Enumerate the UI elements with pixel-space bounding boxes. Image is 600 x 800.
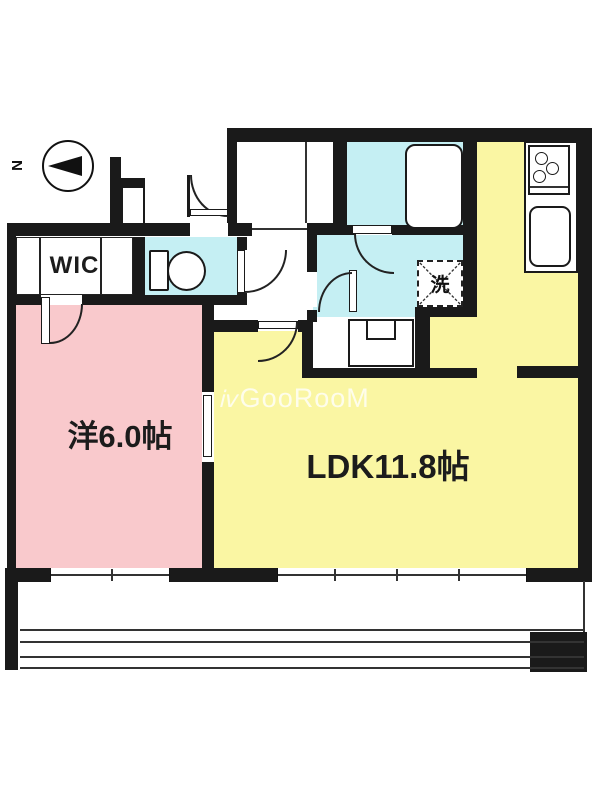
wall <box>415 307 463 317</box>
wall <box>121 178 145 188</box>
washing-machine-box: 洗 <box>417 260 463 307</box>
toilet-tank-icon <box>149 250 169 291</box>
window-tick <box>458 569 460 581</box>
balcony-railing-line <box>20 641 584 643</box>
compass-north-label: N <box>9 160 26 171</box>
western-door-leaf <box>41 297 50 344</box>
balcony-railing-line <box>20 656 584 658</box>
bathroom-door-leaf <box>352 225 392 234</box>
north-arrow-icon <box>48 156 82 176</box>
window-tick <box>111 569 113 581</box>
balcony-partition-block <box>530 632 587 672</box>
wall <box>7 295 41 305</box>
wall <box>7 223 190 236</box>
ldk-label: LDK11.8帖 <box>268 443 508 485</box>
wall <box>82 295 247 305</box>
western-room-label: 洋6.0帖 <box>30 413 210 453</box>
window-tick <box>334 569 336 581</box>
balcony-railing-line <box>20 667 584 669</box>
window <box>277 568 527 582</box>
wall <box>214 320 258 332</box>
wall <box>517 568 592 582</box>
laundry-label: 洗 <box>419 262 461 305</box>
wall <box>313 368 477 378</box>
genkan-step-line <box>252 228 307 230</box>
watermark: ⅳ GooRooM <box>218 383 370 414</box>
room-ldk-nook <box>430 317 478 333</box>
wall <box>170 568 277 582</box>
stove-burner-icon <box>535 152 548 165</box>
toilet-bowl-icon <box>167 251 206 291</box>
wall <box>202 303 214 392</box>
entry-threshold <box>190 209 228 216</box>
wall <box>228 223 252 236</box>
window-glass-line <box>51 574 169 576</box>
floor-plan: WIC <box>0 0 600 800</box>
wall <box>7 223 16 568</box>
wall <box>307 223 347 235</box>
wall <box>578 142 592 581</box>
watermark-text: GooRooM <box>240 383 370 414</box>
stove-burner-icon <box>533 170 546 183</box>
wall <box>202 462 214 568</box>
wall <box>463 128 477 317</box>
vanity-bowl-icon <box>366 319 396 340</box>
wic-label: WIC <box>17 238 132 294</box>
balcony-edge-line <box>583 581 585 632</box>
window <box>50 568 170 582</box>
toilet-door-leaf <box>237 250 245 293</box>
wall <box>227 128 592 142</box>
wall <box>298 320 313 332</box>
wall <box>307 235 317 272</box>
pipe-space-box <box>121 186 145 228</box>
wall <box>110 157 121 228</box>
wall <box>415 317 430 378</box>
room-wic: WIC <box>16 237 133 295</box>
balcony-railing-line <box>20 629 584 631</box>
stove-edge-line <box>530 186 568 188</box>
toilet-door-arc-icon <box>245 250 287 293</box>
wall <box>517 366 592 378</box>
balcony-side-wall <box>5 568 18 670</box>
bathtub-icon <box>405 144 463 229</box>
window-glass-line <box>278 574 526 576</box>
window-tick <box>396 569 398 581</box>
wall <box>333 142 347 224</box>
wall <box>237 237 247 250</box>
kitchen-sink-icon <box>529 206 571 267</box>
watermark-logo-icon: ⅳ <box>218 386 237 413</box>
wall <box>227 142 237 223</box>
stove-burner-icon <box>546 162 559 175</box>
hall-divider-line <box>305 142 307 223</box>
wall <box>133 237 145 295</box>
